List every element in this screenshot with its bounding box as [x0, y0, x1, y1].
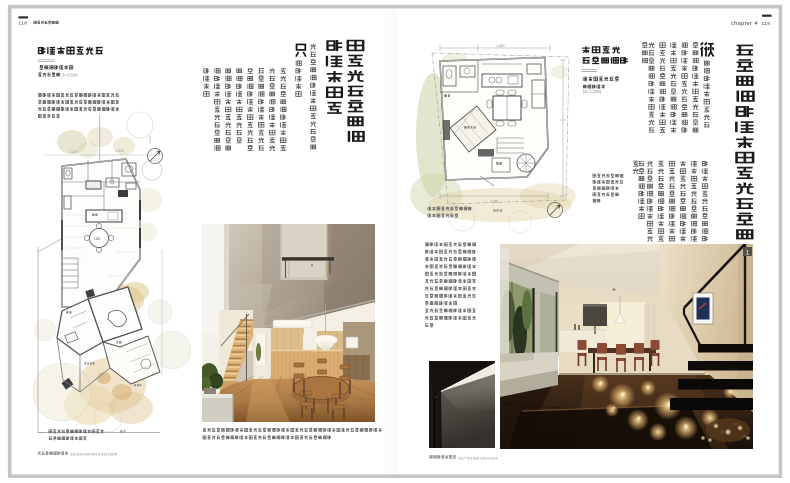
- svg-text:1: 1: [746, 249, 750, 256]
- svg-text:chapter 4: chapter 4: [731, 21, 758, 27]
- svg-text:1,820: 1,820: [70, 150, 78, 154]
- svg-text:1,820: 1,820: [496, 44, 505, 48]
- svg-text:LDK: LDK: [94, 237, 101, 241]
- svg-text:7,280: 7,280: [490, 199, 499, 203]
- svg-text:S=1/100: S=1/100: [62, 72, 78, 77]
- svg-text:S2/DA/SA/OR/146/195R: S2/DA/SA/OR/146/195R: [70, 452, 118, 457]
- svg-text:5,460: 5,460: [116, 149, 124, 153]
- svg-text:S2/73/146/190/1923: S2/73/146/190/1923: [458, 455, 498, 460]
- svg-text:118: 118: [19, 21, 28, 27]
- svg-text:119: 119: [762, 21, 771, 27]
- svg-text:2: 2: [488, 367, 491, 373]
- svg-text:(S=1:100): (S=1:100): [583, 89, 602, 94]
